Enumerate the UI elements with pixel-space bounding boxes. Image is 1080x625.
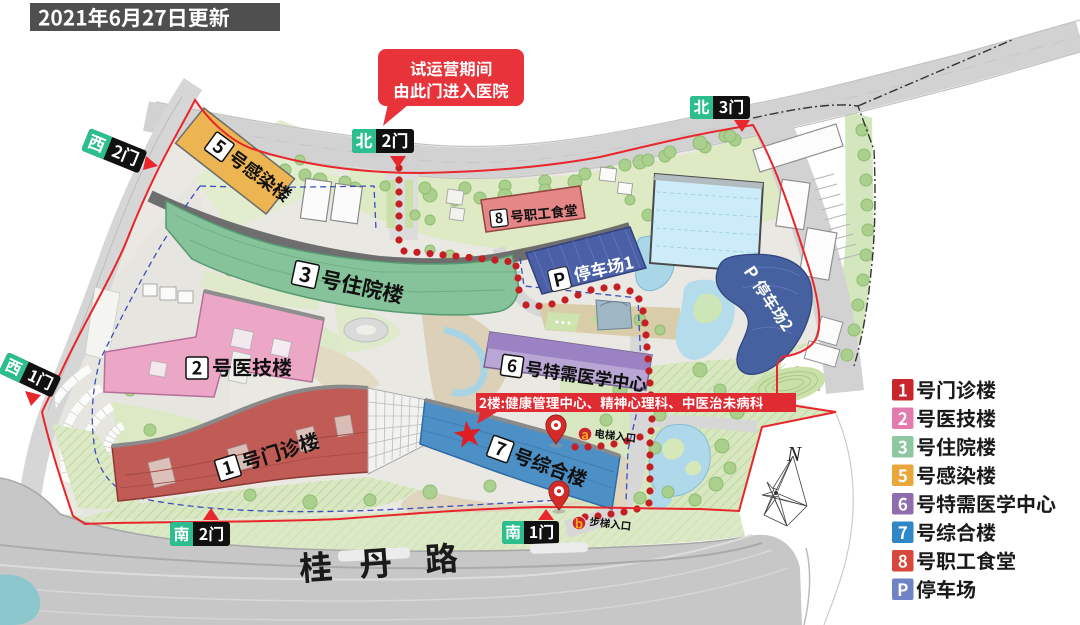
svg-text:N: N [786, 442, 802, 466]
